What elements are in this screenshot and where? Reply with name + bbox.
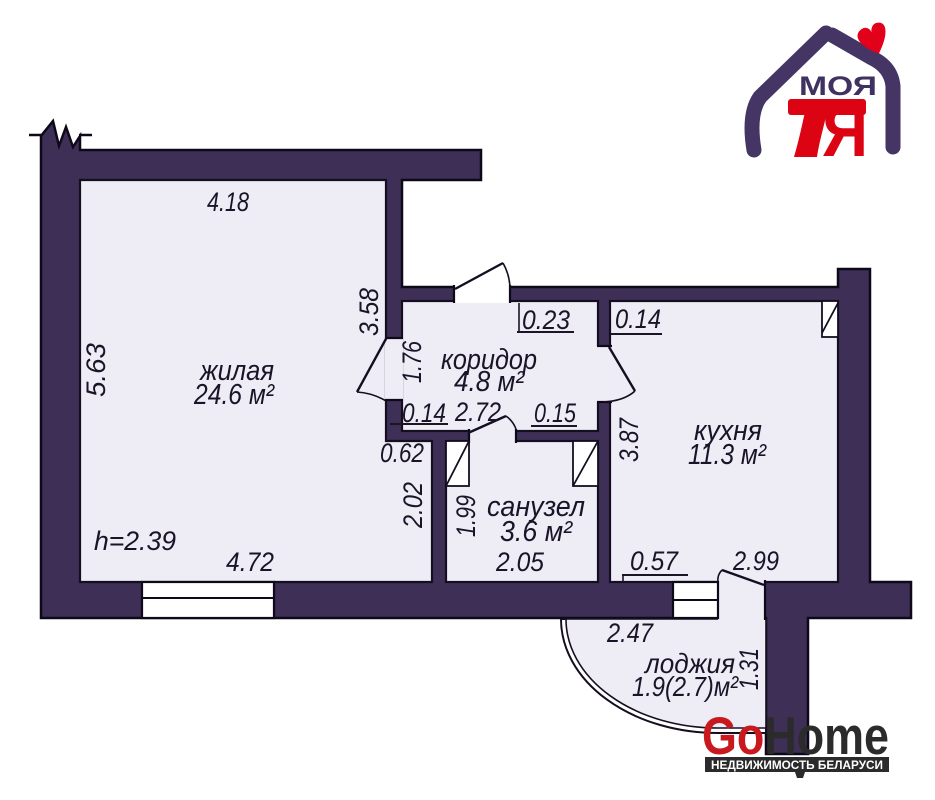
svg-text:Я: Я bbox=[822, 89, 868, 172]
svg-text:2.05: 2.05 bbox=[495, 547, 545, 577]
svg-text:24.6 м²: 24.6 м² bbox=[193, 379, 275, 411]
svg-text:0.57: 0.57 bbox=[630, 546, 679, 576]
svg-text:2.99: 2.99 bbox=[732, 546, 779, 576]
svg-text:0.23: 0.23 bbox=[522, 305, 570, 335]
svg-text:4.72: 4.72 bbox=[226, 547, 274, 577]
svg-text:1.31: 1.31 bbox=[734, 648, 764, 690]
svg-text:2.02: 2.02 bbox=[398, 482, 428, 529]
svg-text:h=2.39: h=2.39 bbox=[94, 526, 176, 556]
svg-text:4.18: 4.18 bbox=[207, 187, 249, 217]
svg-text:0.62: 0.62 bbox=[380, 438, 424, 468]
svg-text:3.87: 3.87 bbox=[614, 417, 644, 462]
svg-text:0.15: 0.15 bbox=[534, 398, 577, 428]
svg-text:НЕДВИЖИМОСТЬ БЕЛАРУСИ: НЕДВИЖИМОСТЬ БЕЛАРУСИ bbox=[711, 758, 883, 772]
svg-text:11.3 м²: 11.3 м² bbox=[688, 439, 767, 471]
svg-text:0.14: 0.14 bbox=[615, 304, 661, 334]
svg-text:1.9(2.7)м²: 1.9(2.7)м² bbox=[632, 671, 739, 702]
svg-text:5.63: 5.63 bbox=[81, 343, 111, 397]
svg-text:3.58: 3.58 bbox=[354, 288, 384, 336]
svg-text:2.47: 2.47 bbox=[606, 618, 654, 648]
svg-text:1.99: 1.99 bbox=[451, 495, 481, 537]
svg-text:4.8 м²: 4.8 м² bbox=[454, 366, 525, 398]
svg-text:2.72: 2.72 bbox=[454, 397, 501, 427]
svg-text:1.76: 1.76 bbox=[397, 340, 427, 383]
svg-text:3.6 м²: 3.6 м² bbox=[500, 516, 573, 548]
